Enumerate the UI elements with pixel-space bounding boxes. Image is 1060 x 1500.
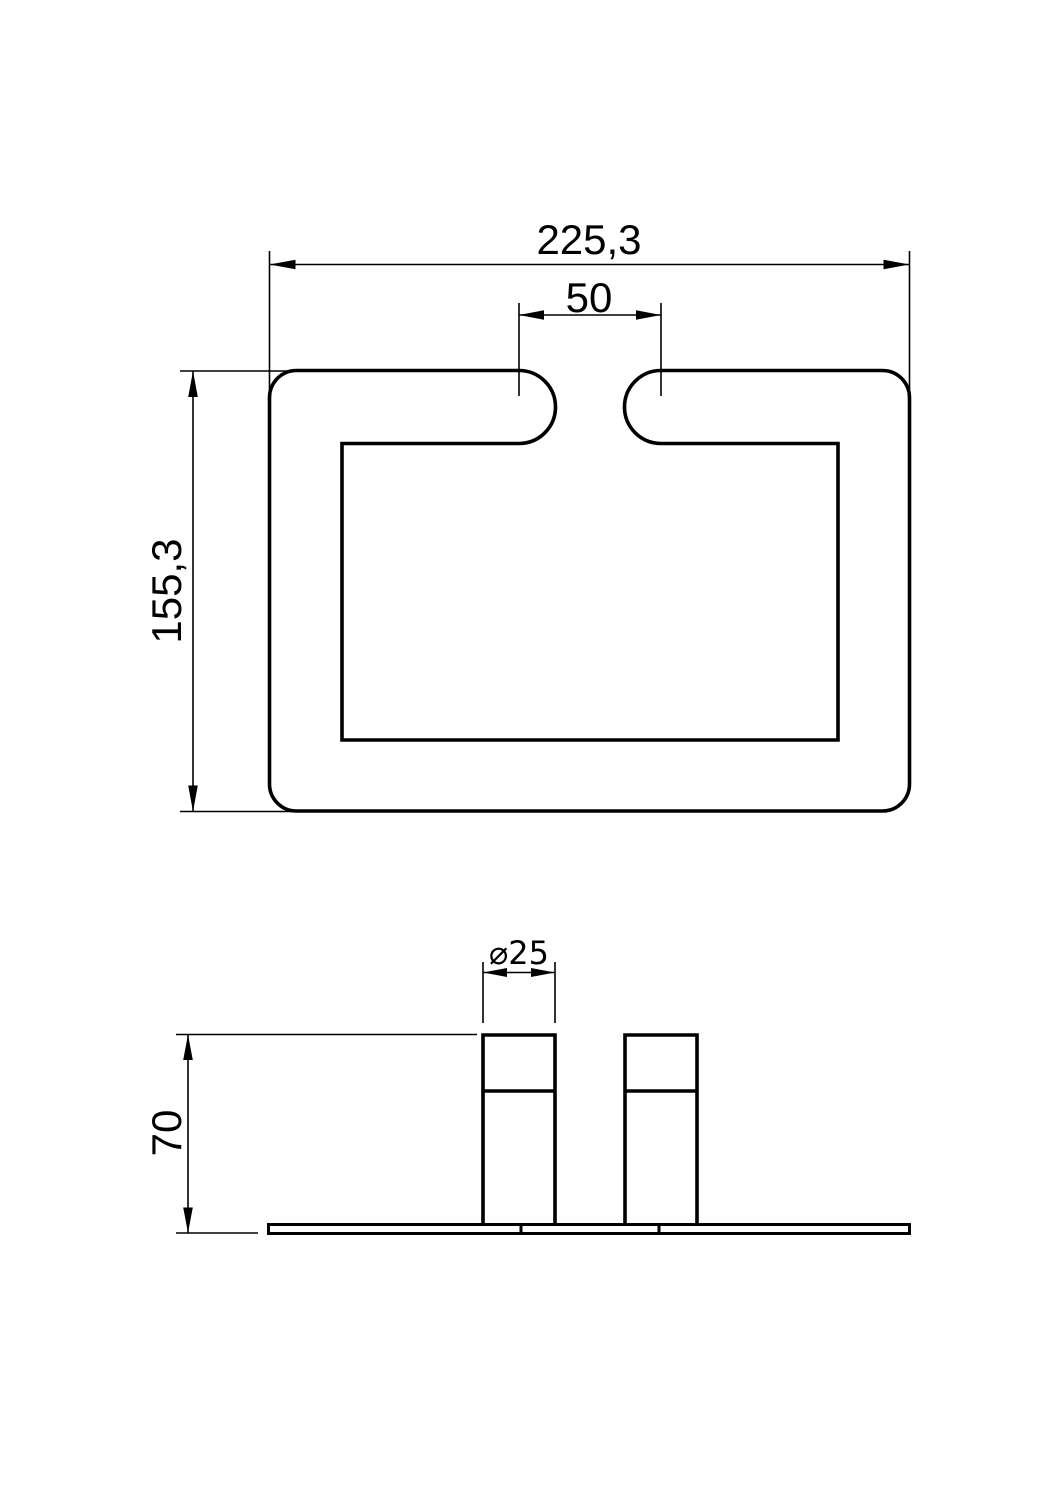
drawing-sheet: 225,3 50 155,3 ⌀25	[0, 0, 1060, 1500]
arrowhead-right	[884, 260, 910, 270]
front-view-left-post	[483, 1035, 555, 1225]
dimension-label-post-diameter: ⌀25	[489, 934, 549, 972]
dimension-label-post-height: 70	[143, 1110, 190, 1157]
arrowhead-left	[519, 310, 544, 319]
dimension-label-overall-height: 155,3	[143, 538, 190, 643]
dimension-overall-height: 155,3	[143, 371, 299, 812]
front-view	[269, 1035, 910, 1234]
dimension-post-diameter: ⌀25	[483, 934, 555, 1023]
arrowhead-bottom	[183, 1208, 193, 1234]
dimension-label-overall-width: 225,3	[536, 216, 641, 263]
arrowhead-left	[270, 260, 296, 270]
front-view-right-post	[625, 1035, 697, 1225]
dimension-post-height: 70	[143, 1035, 477, 1234]
arrowhead-right	[636, 310, 661, 319]
technical-drawing: 225,3 50 155,3 ⌀25	[0, 0, 1060, 1500]
top-view-part-outline	[270, 371, 910, 812]
arrowhead-bottom	[188, 786, 198, 812]
front-view-base-plate	[269, 1225, 910, 1234]
dimension-label-slot-width: 50	[566, 274, 613, 321]
arrowhead-top	[188, 371, 198, 397]
top-view	[270, 371, 910, 812]
arrowhead-top	[183, 1035, 193, 1061]
